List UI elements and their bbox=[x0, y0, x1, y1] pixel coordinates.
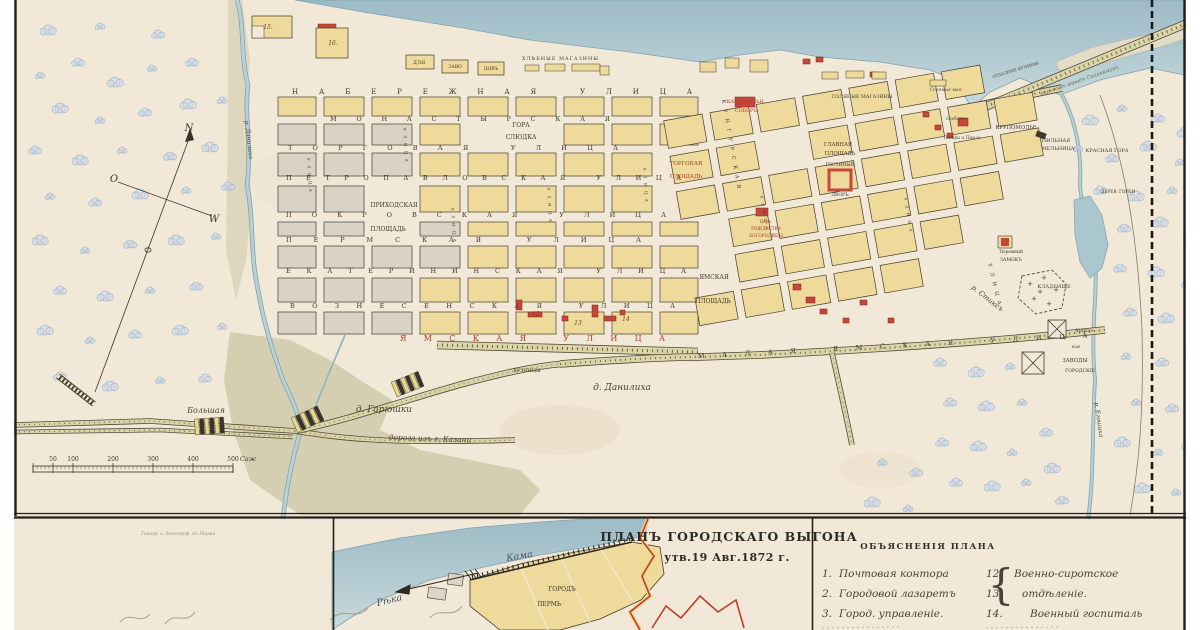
city-block bbox=[420, 153, 460, 176]
red-building bbox=[888, 318, 894, 323]
city-block bbox=[564, 153, 604, 176]
cross-icon: + bbox=[1041, 274, 1047, 282]
legend-row-1-left_text: Почтовая контора bbox=[838, 568, 949, 580]
scale-unit-label: Саж bbox=[240, 455, 257, 463]
city-block bbox=[564, 97, 604, 116]
cross-icon: + bbox=[1046, 300, 1052, 308]
number-15: 15. bbox=[263, 24, 273, 31]
label-yamskaya-pl-1: ЯМСКАЯ bbox=[699, 274, 729, 281]
number-13: 13 bbox=[574, 320, 582, 327]
label-kirpichnye-1: Кирпич- bbox=[1075, 329, 1095, 334]
scan-margin-left bbox=[0, 0, 14, 630]
label-torgovaya-pl-1: ТОРГОВАЯ bbox=[670, 161, 703, 167]
city-block bbox=[372, 278, 412, 302]
legend-row-1-left_num: 1. bbox=[822, 568, 832, 580]
label-derev-gorki: ДЕРЕВ. ГОРКИ bbox=[1101, 189, 1135, 194]
label-tserkov-1: Церк. bbox=[760, 219, 773, 224]
city-block bbox=[468, 246, 508, 268]
city-block bbox=[372, 153, 412, 176]
paper-stain bbox=[500, 405, 620, 455]
label-solyanye-mag: Соляные маг. bbox=[930, 87, 963, 93]
city-block bbox=[660, 246, 698, 268]
number-12: 12 bbox=[532, 311, 540, 318]
compass-o: O bbox=[110, 174, 118, 185]
legend-row-3-left_num: 3. bbox=[822, 608, 832, 620]
compass-w: W bbox=[209, 214, 220, 225]
inset-label-perm: ПЕРМЬ bbox=[537, 601, 561, 608]
city-block bbox=[420, 124, 460, 145]
city-block bbox=[324, 222, 364, 236]
label-hlebnye-magaziny: ХЛѢБНЫЕ МАГАЗИНЫ bbox=[522, 56, 598, 62]
red-building bbox=[843, 318, 849, 323]
red-building bbox=[803, 59, 810, 64]
label-krupomolye: КРУПОМОЛЬЕ bbox=[995, 125, 1036, 131]
label-glavnaya-pl-2: ПЛОЩАДЬ bbox=[825, 151, 856, 157]
city-block bbox=[324, 312, 364, 334]
city-block bbox=[324, 246, 364, 268]
scale-tick-label: 400 bbox=[187, 456, 199, 463]
scale-tick-label: 100 bbox=[67, 456, 79, 463]
prison-building bbox=[998, 236, 1012, 248]
label-tyuremny-2: ЗАМОКЪ bbox=[1000, 257, 1022, 263]
city-block bbox=[612, 153, 652, 176]
label-prihodskaya-pl-2: ПЛОЩАДЬ bbox=[370, 226, 405, 233]
city-block bbox=[468, 222, 508, 236]
red-building bbox=[562, 316, 568, 321]
label-sobor-petra: Соборъ bbox=[946, 115, 966, 122]
legend-row-2-left_num: 2. bbox=[821, 588, 832, 600]
red-building bbox=[793, 284, 801, 290]
city-block bbox=[612, 222, 652, 236]
label-torgovaya-pl-2: ПЛОЩАДЬ bbox=[670, 174, 703, 180]
legend-row-3-left_text: Город. управленіе. bbox=[838, 608, 943, 620]
label-solyanye-magaziny: СОЛЯНЫЕ МАГАЗИНЫ bbox=[832, 94, 893, 100]
city-block bbox=[372, 246, 412, 268]
city-block bbox=[516, 278, 556, 302]
label-pilnaya-1: ПИЛЬНАЯ bbox=[1042, 138, 1070, 144]
label-prihodskaya-pl-1: ПРИХОДСКАЯ bbox=[370, 202, 417, 209]
map-sheet: ++++++ 50100200300400500Саж bbox=[0, 0, 1200, 630]
label-tserkov-2: РОЖДЕСТВА bbox=[751, 226, 781, 231]
city-block bbox=[278, 124, 316, 145]
red-building bbox=[620, 310, 625, 315]
label-zavody-1: ЗАВОДЫ bbox=[1062, 358, 1088, 364]
city-block bbox=[420, 278, 460, 302]
city-block bbox=[516, 153, 556, 176]
scale-tick-label: 50 bbox=[49, 456, 57, 463]
city-block bbox=[278, 246, 316, 268]
scale-tick-label: 200 bbox=[107, 456, 119, 463]
city-block bbox=[278, 312, 316, 334]
legend-row-2-right_text: отдѣленіе. bbox=[1022, 588, 1087, 600]
label-zavody-2: ГОРОДСКІЕ bbox=[1065, 368, 1095, 374]
city-block bbox=[324, 186, 364, 212]
city-block bbox=[564, 246, 604, 268]
city-block bbox=[278, 278, 316, 302]
legend-row-1-right_text: Военно-сиротское bbox=[1013, 568, 1118, 580]
label-kuznitsy: КУЗНИЦЫ bbox=[513, 368, 541, 374]
city-block bbox=[660, 97, 698, 116]
inset-building bbox=[427, 587, 446, 600]
label-dlya: ДЛЯ bbox=[413, 60, 425, 66]
city-block bbox=[660, 222, 698, 236]
city-block bbox=[516, 246, 556, 268]
number-16: 16. bbox=[328, 40, 338, 47]
city-block bbox=[612, 124, 652, 145]
cross-icon: + bbox=[1027, 280, 1033, 288]
inset-title-line2: утв.19 Авг.1872 г. bbox=[664, 551, 790, 564]
paper-stain bbox=[840, 452, 920, 488]
city-block bbox=[564, 278, 604, 302]
city-block bbox=[612, 312, 652, 334]
printer-mark: Типогр. и Литограф. въ Перми bbox=[141, 530, 216, 537]
label-gora-sludka-1: ГОРА bbox=[512, 122, 530, 129]
scale-tick-label: 500 bbox=[227, 456, 239, 463]
compass-n: N bbox=[184, 123, 195, 134]
legend-row-3-right_text: Военный госпиталь bbox=[1029, 608, 1143, 620]
city-block bbox=[468, 278, 508, 302]
city-block bbox=[468, 186, 508, 212]
label-glavnaya-pl-1: ГЛАВНАЯ bbox=[824, 142, 852, 148]
city-block bbox=[612, 97, 652, 116]
label-yamskaya-pl-2: ПЛОЩАДЬ bbox=[695, 298, 730, 305]
red-building bbox=[604, 316, 616, 321]
city-block bbox=[516, 222, 556, 236]
city-block bbox=[324, 97, 364, 116]
city-block bbox=[420, 312, 460, 334]
label-krasnaya-gora: КРАСНАЯ ГОРА bbox=[1085, 148, 1128, 154]
city-block bbox=[468, 312, 508, 334]
scale-tick-label: 300 bbox=[147, 456, 159, 463]
city-block bbox=[468, 153, 508, 176]
number-14: 14 bbox=[622, 316, 630, 323]
red-building bbox=[860, 300, 867, 305]
red-building bbox=[592, 305, 598, 317]
city-block bbox=[516, 97, 556, 116]
city-block bbox=[564, 186, 604, 212]
city-block bbox=[372, 312, 412, 334]
legend-brace: { bbox=[988, 560, 1015, 609]
label-gostiny-2: ДВОРЪ bbox=[831, 192, 849, 198]
city-block bbox=[612, 246, 652, 268]
label-petra-pavla: Петра и Павла bbox=[943, 135, 981, 141]
map-canvas: ++++++ 50100200300400500Саж bbox=[0, 0, 1200, 630]
red-building bbox=[806, 297, 815, 303]
city-block bbox=[660, 312, 698, 334]
city-block bbox=[420, 97, 460, 116]
city-block bbox=[612, 278, 652, 302]
legend-heading: ОБЪЯСНЕНІЯ ПЛАНА bbox=[860, 542, 995, 552]
inset-title-line1: ПЛАНЪ ГОРОДСКАГО ВЫГОНА bbox=[600, 529, 858, 544]
label-kladbishche: КЛАДБИЩЕ bbox=[1037, 284, 1071, 290]
label-d-danilikha: д. Данилиха bbox=[593, 383, 651, 393]
label-kafedralny-1: КАФЕДРАЛЬН. bbox=[727, 99, 766, 105]
inset-label-gorod: ГОРОДЪ bbox=[548, 586, 576, 593]
label-bolshaya: Большая bbox=[186, 406, 225, 415]
label-d-garyushki: д. Гарюшки bbox=[356, 405, 412, 415]
label-tyuremny-1: Тюремный bbox=[999, 249, 1023, 254]
city-block bbox=[468, 97, 508, 116]
city-block bbox=[324, 153, 364, 176]
red-building bbox=[935, 125, 941, 130]
city-block bbox=[420, 246, 460, 268]
label-zavo: ЗАВО bbox=[448, 64, 462, 70]
city-block bbox=[564, 222, 604, 236]
label-kirpichnye-2: ные bbox=[1071, 345, 1080, 350]
city-block bbox=[278, 222, 316, 236]
label-kafedralny-2: СОБОРЪ bbox=[735, 108, 757, 114]
city-block bbox=[660, 278, 698, 302]
red-building bbox=[820, 309, 827, 314]
label-gora-sludka-2: СЛЮДКА bbox=[506, 134, 537, 141]
legend-row-3-right_num: 14. bbox=[986, 608, 1003, 620]
label-dov: ДОВЪ bbox=[484, 66, 499, 72]
legend-row-2-left_text: Городовой лазаретъ bbox=[838, 588, 956, 600]
cross-icon: + bbox=[1031, 295, 1037, 303]
city-block bbox=[324, 278, 364, 302]
city-block bbox=[278, 97, 316, 116]
city-block bbox=[564, 124, 604, 145]
label-tserkov-3: БОГОРОДИЦЫ bbox=[749, 233, 783, 238]
city-block bbox=[372, 97, 412, 116]
label-pilnaya-2: МЕЛЬНИЦА bbox=[1041, 146, 1074, 152]
red-building bbox=[923, 112, 929, 117]
city-block bbox=[324, 124, 364, 145]
scan-margin-right bbox=[1186, 0, 1200, 630]
red-building bbox=[816, 57, 823, 62]
